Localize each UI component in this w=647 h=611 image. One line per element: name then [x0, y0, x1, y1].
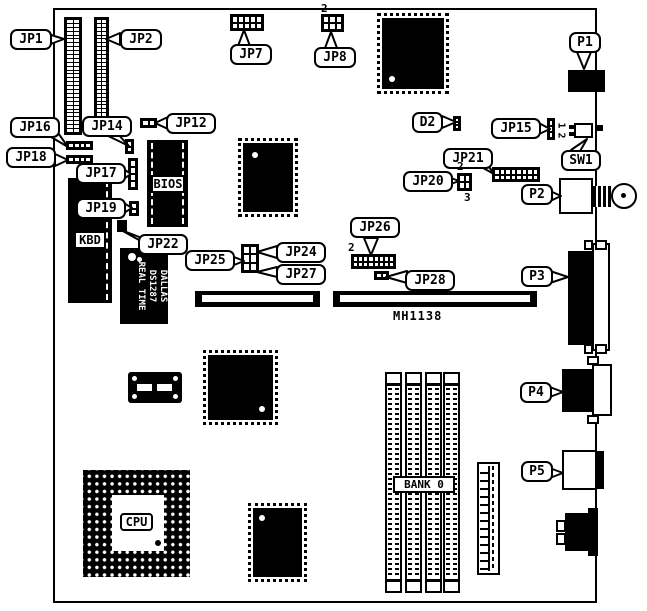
callout-p2: P2 [521, 184, 553, 205]
p3-mount-tab [595, 240, 607, 250]
osc-pad [132, 394, 137, 399]
bnc-center-pin [621, 193, 626, 198]
cpu-pin1-dot [155, 540, 161, 546]
callout-jp2: JP2 [120, 29, 162, 50]
callout-p1: P1 [569, 32, 601, 53]
jp21-header [492, 167, 540, 182]
jp16-jumper [66, 141, 93, 150]
jp12-jumper [140, 118, 157, 128]
jp20-pin3-number: 3 [464, 192, 471, 203]
p4-connector-face [592, 364, 612, 416]
osc-pad [132, 376, 137, 381]
osc-slot [157, 384, 172, 391]
jp8-pin2-number: 2 [321, 3, 328, 14]
expansion-slot-left [195, 291, 320, 307]
jp22-jumper [117, 220, 127, 232]
d2-diode [453, 116, 461, 131]
callout-p5: P5 [521, 461, 553, 482]
qfp-chip-mid [243, 143, 293, 212]
pin1-dot [259, 406, 265, 412]
p3-mount-tab [584, 240, 593, 250]
jp20-jumper-block [457, 173, 472, 191]
bottom-right-connector-ext [588, 508, 598, 556]
callout-jp12: JP12 [166, 113, 216, 134]
bank0-label: BANK 0 [393, 476, 455, 493]
callout-jp1: JP1 [10, 29, 52, 50]
sw1-switch [574, 123, 593, 138]
sw1-pad [597, 125, 603, 131]
osc-slot [137, 384, 152, 391]
osc-pad [173, 376, 178, 381]
cpu-label: CPU [120, 513, 153, 531]
callout-jp20: JP20 [403, 171, 453, 192]
rtc-chip: DALLAS DS1287 REAL TIME [120, 248, 168, 324]
motherboard-diagram: BIOS KBD DALLAS DS1287 REAL TIME CPU BAN… [0, 0, 647, 611]
expansion-slot-right [333, 291, 537, 307]
osc-pad [173, 394, 178, 399]
rtc-line3: REAL TIME [135, 248, 146, 324]
qfp-chip-top [382, 18, 444, 89]
callout-jp28: JP28 [405, 270, 455, 291]
callout-jp24: JP24 [276, 242, 326, 263]
callout-jp8: JP8 [314, 47, 356, 68]
jp8-header [321, 14, 344, 32]
callout-jp19: JP19 [76, 198, 126, 219]
jp19-jumper [129, 201, 139, 216]
callout-p4: P4 [520, 382, 552, 403]
qfp-chip-bottom [253, 508, 302, 577]
sw1-pin [569, 125, 574, 129]
callout-jp17: JP17 [76, 163, 126, 184]
jp2-header-connector [94, 17, 109, 123]
p2-connector [559, 178, 593, 214]
p3-connector-body [568, 251, 593, 345]
callout-jp16: JP16 [10, 117, 60, 138]
pin1-dot [252, 152, 258, 158]
p5-connector-shroud [596, 451, 604, 489]
aux-memory-connector [477, 462, 500, 575]
p3-mount-tab [584, 344, 593, 354]
jp14-jumper [125, 139, 134, 154]
bnc-thread [593, 186, 611, 207]
callout-jp14: JP14 [82, 116, 132, 137]
p4-mount-tab [587, 356, 599, 365]
jp1-header-connector [64, 17, 82, 135]
callout-d2: D2 [412, 112, 443, 133]
callout-jp18: JP18 [6, 147, 56, 168]
kbd-chip-label: KBD [74, 231, 106, 249]
p4-connector-body [562, 369, 592, 412]
callout-jp22: JP22 [138, 234, 188, 255]
callout-jp26: JP26 [350, 217, 400, 238]
jp26-header [351, 254, 396, 269]
qfp-chip-center [208, 355, 273, 420]
p1-connector [568, 70, 605, 92]
board-code: MH1138 [393, 311, 442, 322]
jp26-pin2-number: 2 [348, 242, 355, 253]
sw1-pin [569, 132, 574, 136]
rtc-line2: DS1287 [146, 248, 157, 324]
jp28-jumper [374, 271, 389, 280]
callout-p3: P3 [521, 266, 553, 287]
rtc-line1: DALLAS [157, 248, 168, 324]
jp17-header [128, 158, 138, 190]
p3-connector-face [592, 243, 610, 351]
rtc-chip-text: DALLAS DS1287 REAL TIME [120, 248, 168, 324]
callout-jp7: JP7 [230, 44, 272, 65]
jp15-jumper [547, 118, 555, 140]
oscillator [128, 372, 182, 403]
callout-jp21: JP21 [443, 148, 493, 169]
jp7-header [230, 14, 264, 31]
sw1-pin2-number: 2 [556, 132, 567, 138]
p3-mount-tab [595, 344, 607, 354]
p5-connector [562, 450, 597, 490]
callout-jp25: JP25 [185, 250, 235, 271]
cpu-socket: CPU [83, 470, 190, 577]
connector-pin-box [556, 533, 566, 545]
sw1-pin1-number: 1 [556, 122, 567, 128]
callout-jp15: JP15 [491, 118, 541, 139]
bios-chip-label: BIOS [151, 175, 185, 193]
pin1-dot [389, 76, 395, 82]
jp24-jp27-jumper-block [241, 244, 259, 273]
jp20-pin2-number: 2 [457, 161, 464, 172]
connector-pin-box [556, 520, 566, 532]
callout-jp27: JP27 [276, 264, 326, 285]
p4-mount-tab [587, 415, 599, 424]
callout-sw1: SW1 [561, 150, 601, 171]
pin1-dot [259, 515, 265, 521]
